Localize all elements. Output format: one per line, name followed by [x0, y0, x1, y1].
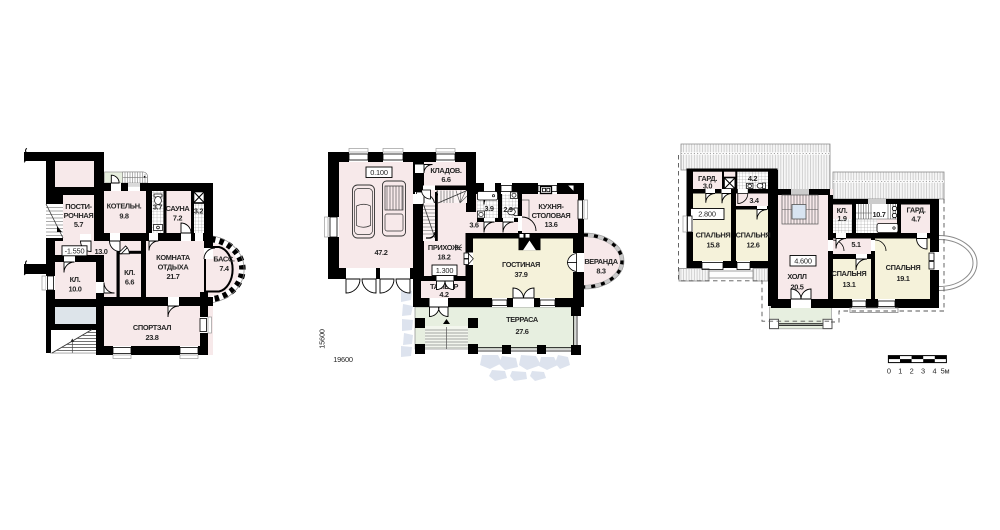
svg-text:19.1: 19.1: [897, 274, 910, 283]
svg-text:47.2: 47.2: [375, 248, 388, 257]
svg-text:6.6: 6.6: [125, 278, 134, 287]
svg-text:7.2: 7.2: [173, 214, 182, 223]
svg-text:БАСС.: БАСС.: [213, 255, 234, 264]
svg-text:13.0: 13.0: [95, 247, 108, 256]
svg-text:КЛ.: КЛ.: [124, 268, 135, 277]
svg-text:3.7: 3.7: [153, 203, 162, 212]
svg-text:ТЕРРАСА: ТЕРРАСА: [506, 315, 539, 324]
svg-text:-1.550: -1.550: [65, 247, 85, 256]
svg-text:ХОЛЛ: ХОЛЛ: [787, 272, 806, 281]
svg-text:10.7: 10.7: [873, 210, 886, 219]
svg-text:2: 2: [910, 367, 914, 376]
svg-text:2.800: 2.800: [698, 210, 716, 219]
svg-text:ПОСТИ-: ПОСТИ-: [65, 202, 92, 211]
svg-text:3.9: 3.9: [484, 204, 493, 213]
svg-text:5.1: 5.1: [851, 240, 860, 249]
svg-text:2.9: 2.9: [503, 205, 512, 214]
svg-text:СПАЛЬНЯ: СПАЛЬНЯ: [736, 231, 771, 240]
svg-text:13.1: 13.1: [843, 280, 856, 289]
svg-text:9.8: 9.8: [119, 212, 128, 221]
svg-text:ОТДЫХА: ОТДЫХА: [158, 263, 190, 272]
svg-text:4: 4: [932, 367, 936, 376]
svg-text:РОЧНАЯ: РОЧНАЯ: [64, 211, 94, 220]
svg-text:21.7: 21.7: [167, 272, 180, 281]
svg-text:4.7: 4.7: [911, 215, 920, 224]
svg-text:0: 0: [887, 367, 891, 376]
svg-text:КЛАДОВ.: КЛАДОВ.: [430, 166, 462, 175]
svg-text:5м: 5м: [941, 367, 950, 376]
svg-text:3.6: 3.6: [469, 221, 478, 230]
svg-text:3.4: 3.4: [749, 196, 759, 205]
svg-text:3.2: 3.2: [194, 207, 203, 216]
svg-text:27.6: 27.6: [516, 327, 529, 336]
svg-text:СПАЛЬНЯ: СПАЛЬНЯ: [832, 269, 867, 278]
svg-text:СПАЛЬНЯ: СПАЛЬНЯ: [886, 263, 921, 272]
svg-text:15600: 15600: [318, 329, 327, 349]
svg-text:4.2: 4.2: [748, 174, 757, 183]
svg-text:КОТЕЛЬН.: КОТЕЛЬН.: [107, 202, 142, 211]
svg-text:5.7: 5.7: [74, 220, 83, 229]
svg-text:СПАЛЬНЯ: СПАЛЬНЯ: [696, 231, 731, 240]
svg-text:КУХНЯ-: КУХНЯ-: [538, 202, 564, 211]
svg-text:37.9: 37.9: [515, 270, 528, 279]
svg-text:12.6: 12.6: [747, 241, 760, 250]
svg-text:ГОСТИНАЯ: ГОСТИНАЯ: [502, 260, 540, 269]
svg-text:8.3: 8.3: [596, 267, 605, 276]
svg-text:23.8: 23.8: [146, 333, 159, 342]
svg-text:6.6: 6.6: [441, 175, 450, 184]
svg-text:САУНА: САУНА: [166, 204, 191, 213]
svg-text:15.8: 15.8: [707, 241, 720, 250]
svg-text:18.2: 18.2: [438, 253, 451, 262]
svg-text:4.600: 4.600: [794, 257, 812, 266]
svg-text:КЛ.: КЛ.: [70, 275, 81, 284]
svg-text:СТОЛОВАЯ: СТОЛОВАЯ: [532, 211, 571, 220]
svg-text:4.2: 4.2: [439, 290, 448, 299]
svg-text:ВЕРАНДА: ВЕРАНДА: [584, 257, 618, 266]
svg-text:7.4: 7.4: [219, 264, 229, 273]
svg-text:СПОРТЗАЛ: СПОРТЗАЛ: [133, 323, 171, 332]
svg-text:13.6: 13.6: [545, 220, 558, 229]
svg-text:ГАРД.: ГАРД.: [906, 206, 925, 215]
svg-text:КОМНАТА: КОМНАТА: [156, 253, 191, 262]
svg-text:19600: 19600: [333, 355, 353, 364]
svg-text:1.300: 1.300: [436, 266, 454, 275]
svg-text:1: 1: [898, 367, 902, 376]
svg-text:10.0: 10.0: [69, 285, 82, 294]
svg-text:0.100: 0.100: [370, 168, 388, 177]
svg-text:3: 3: [921, 367, 925, 376]
svg-text:1.9: 1.9: [837, 214, 846, 223]
